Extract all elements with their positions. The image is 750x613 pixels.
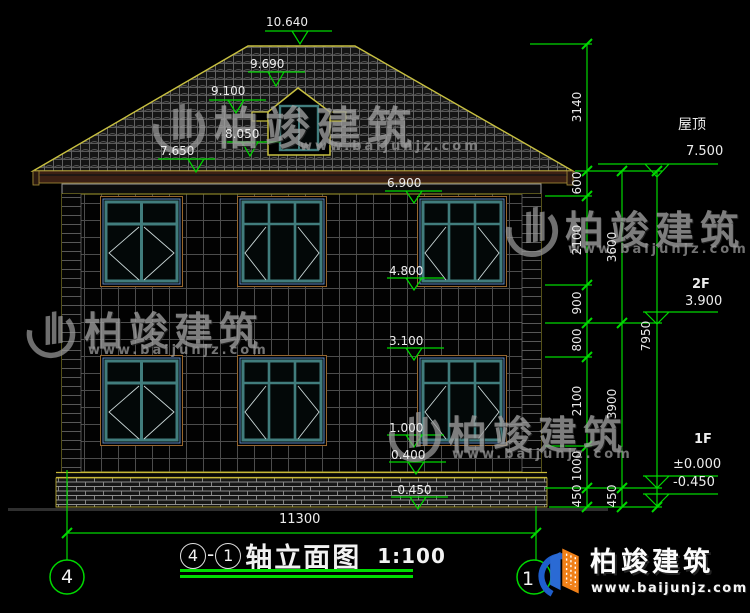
title-underline-top [180, 569, 413, 572]
company-logo-icon [538, 534, 590, 608]
dim-outer-7950: 7950 [640, 321, 652, 352]
dim-inner-1000: 1000 [571, 451, 583, 482]
title-underline-bottom [180, 575, 413, 578]
level-label-f1-window-top: 3.100 [389, 335, 423, 347]
overall-width-dim: 11300 [279, 513, 320, 526]
watermark-url: www.baijunjz.com [300, 139, 481, 154]
plinth [8, 472, 608, 511]
level-label-eave-gutter: 7.650 [160, 145, 194, 157]
level-label-ridge: 10.640 [266, 16, 308, 28]
title-axis-start-circle: 4 [180, 543, 206, 569]
watermark-url: www.baijunjz.com [568, 242, 749, 257]
title-scale: 1:100 [377, 544, 446, 568]
dim-inner-600: 600 [571, 172, 583, 195]
f1-level-value: ±0.000 [673, 458, 721, 471]
level-label-dormer-peak: 9.690 [250, 58, 284, 70]
dim-mid-3900: 3900 [606, 389, 618, 420]
f2-level-value: 3.900 [685, 295, 722, 308]
roof-level-name: 屋顶 [678, 118, 706, 132]
level-label-dormer-mid: 9.100 [211, 85, 245, 97]
level-label-plinth-top: 0.400 [391, 449, 425, 461]
dim-inner-3140: 3140 [571, 92, 583, 123]
f1-level-name: 1F [694, 433, 712, 446]
dim-inner-2100: 2100 [571, 225, 583, 256]
elevation-drawing-canvas: 柏竣建筑 www.baijunjz.com 柏竣建筑 www.baijunjz.… [0, 0, 750, 613]
watermark-url: www.baijunjz.com [452, 447, 633, 462]
company-logo-text: 柏竣建筑 [590, 540, 714, 579]
level-label-f1-window-bottom: 1.000 [389, 422, 423, 434]
title-axis-end-circle: 1 [215, 543, 241, 569]
axis-bubble-left: 4 [61, 566, 73, 588]
ground-level-value: -0.450 [673, 476, 715, 489]
dim-inner-2100b: 2100 [571, 386, 583, 417]
watermark-url: www.baijunjz.com [88, 343, 269, 358]
dim-inner-900: 900 [571, 292, 583, 315]
dim-inner-800: 800 [571, 329, 583, 352]
company-logo-url: www.baijunjz.com [591, 581, 748, 596]
axis-bubble-right: 1 [522, 568, 534, 590]
dim-mid-450: 450 [606, 485, 618, 508]
level-label-dormer-base: 8.050 [225, 128, 259, 140]
level-label-f2-window-bottom: 4.800 [389, 265, 423, 277]
title-axis-separator: - [207, 542, 214, 566]
level-label-f2-window-top: 6.900 [387, 177, 421, 189]
dim-mid-3600: 3600 [606, 232, 618, 263]
level-label-ground: -0.450 [393, 484, 432, 496]
f2-level-name: 2F [692, 278, 710, 291]
dim-inner-450: 450 [571, 485, 583, 508]
roof-level-value: 7.500 [686, 145, 723, 158]
